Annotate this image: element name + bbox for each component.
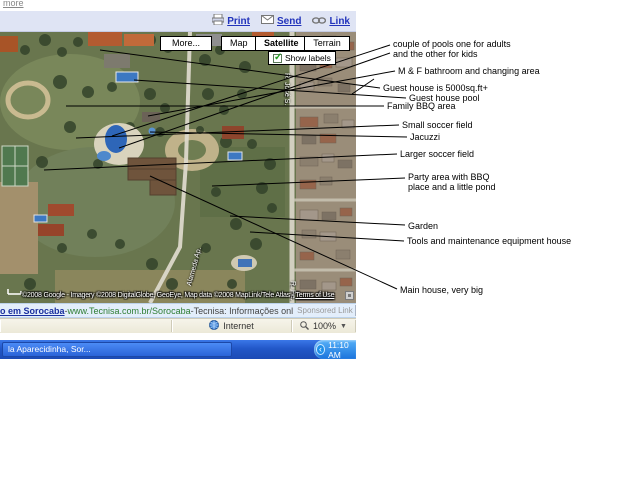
browser-status-bar: Internet 100% ▼ xyxy=(0,318,356,333)
map-copyright: ©2008 Google - Imagery ©2008 DigitalGlob… xyxy=(22,292,352,299)
sponsored-prev-button[interactable]: < xyxy=(355,305,356,316)
sponsored-url: www.Tecnisa.com.br/Sorocaba xyxy=(68,306,191,316)
link-link[interactable]: Link xyxy=(312,16,350,27)
map-action-bar: Print Send Link xyxy=(0,11,356,32)
zoom-control[interactable]: 100% ▼ xyxy=(292,320,356,332)
terrain-button[interactable]: Terrain xyxy=(304,36,350,51)
chain-icon xyxy=(312,16,326,27)
annotation-label: Family BBQ area xyxy=(387,101,456,111)
browser-top-strip: more xyxy=(0,0,356,11)
checkbox-checked-icon xyxy=(273,54,282,63)
annotation-label: Main house, very big xyxy=(400,285,483,295)
sponsored-link[interactable]: o em Sorocaba xyxy=(0,306,65,316)
map-type-buttons: More... Map Satellite Terrain xyxy=(160,36,350,51)
annotation-label: couple of pools one for adultsand the ot… xyxy=(393,39,511,59)
magnifier-icon xyxy=(300,321,309,332)
taskbar: la Aparecidinha, Sor... ‹ 11:10 AM xyxy=(0,340,356,359)
sponsored-link-bar: o em Sorocaba - www.Tecnisa.com.br/Soroc… xyxy=(0,303,356,318)
more-link[interactable]: more xyxy=(3,0,24,8)
annotation-label: Party area with BBQplace and a little po… xyxy=(408,172,496,192)
street-label: R. José S. xyxy=(283,73,290,105)
annotation-label: Garden xyxy=(408,221,438,231)
satellite-map[interactable]: More... Map Satellite Terrain Show label… xyxy=(0,32,356,303)
zoom-level: 100% xyxy=(313,321,336,331)
satellite-button[interactable]: Satellite xyxy=(255,36,305,51)
annotation-label: M & F bathroom and changing area xyxy=(398,66,540,76)
envelope-icon xyxy=(261,15,274,27)
printer-icon xyxy=(212,14,224,28)
screenshot-root: more Print Send Link xyxy=(0,0,640,480)
clock: 11:10 AM xyxy=(328,340,356,360)
internet-globe-icon xyxy=(209,320,219,332)
annotation-label: Small soccer field xyxy=(402,120,473,130)
print-link[interactable]: Print xyxy=(212,14,250,28)
show-labels-checkbox[interactable]: Show labels xyxy=(268,51,336,65)
sponsored-tag: Sponsored Link xyxy=(297,306,353,315)
taskbar-window-button[interactable]: la Aparecidinha, Sor... xyxy=(2,342,232,357)
terms-of-use-link[interactable]: Terms of Use xyxy=(295,292,334,299)
annotation-label: Larger soccer field xyxy=(400,149,474,159)
map-button[interactable]: Map xyxy=(221,36,256,51)
annotation-label: Guest house is 5000sq.ft+ xyxy=(383,83,488,93)
more-button[interactable]: More... xyxy=(160,36,212,51)
send-link[interactable]: Send xyxy=(261,15,301,27)
annotation-label: Jacuzzi xyxy=(410,132,440,142)
satellite-imagery xyxy=(0,32,356,303)
sponsored-desc: Tecnisa: Informações onl xyxy=(194,306,294,316)
status-message-pane xyxy=(0,320,172,332)
map-corner-icon[interactable] xyxy=(345,291,354,300)
tray-collapse-icon[interactable]: ‹ xyxy=(316,344,325,355)
system-tray: ‹ 11:10 AM xyxy=(314,340,356,359)
security-zone-label: Internet xyxy=(223,321,254,331)
zoom-caret-icon: ▼ xyxy=(340,323,347,330)
security-zone-pane: Internet xyxy=(172,320,292,332)
annotation-label: Tools and maintenance equipment house xyxy=(407,236,571,246)
show-labels-label: Show labels xyxy=(285,53,331,63)
